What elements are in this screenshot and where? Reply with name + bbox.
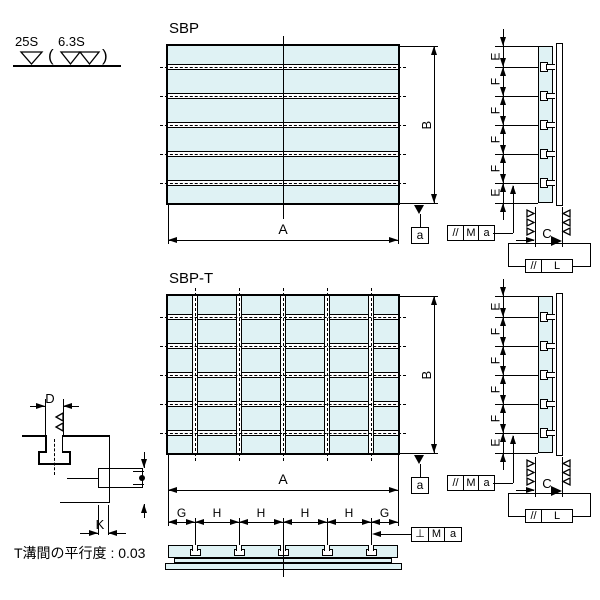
dimension-arrow <box>362 519 371 525</box>
dimension-arrow <box>500 287 506 296</box>
dimension-arrow <box>318 519 327 525</box>
dimension-label: E <box>489 298 502 314</box>
frame-cell: L <box>541 260 572 272</box>
surface-roughness-mark <box>526 477 535 486</box>
line <box>133 471 144 472</box>
line <box>133 484 144 485</box>
surface-roughness-mark <box>526 468 535 477</box>
dimension-label: E <box>489 48 502 64</box>
dimension-arrow <box>372 531 381 537</box>
dimension-arrow <box>283 519 292 525</box>
dimension-label: F <box>489 410 502 426</box>
dimension-arrow <box>431 194 437 203</box>
surface-roughness-mark <box>526 227 535 236</box>
surface-finish-close-paren: ) <box>102 47 108 66</box>
dimension-label: E <box>489 185 502 201</box>
frame-cell: M <box>428 528 444 541</box>
line <box>168 490 398 491</box>
surface-finish-triangle <box>20 51 43 65</box>
t-slot-profile-neck <box>546 430 555 436</box>
dimension-arrow <box>327 519 336 525</box>
frame-cell: // <box>526 510 541 522</box>
frame-cell: // <box>448 226 463 240</box>
dimension-arrow <box>500 453 506 462</box>
datum-triangle <box>414 205 424 214</box>
surface-roughness-mark <box>562 459 571 468</box>
dimension-arrow <box>195 519 204 525</box>
dimension-label: A <box>271 472 295 487</box>
frame-cell: M <box>463 476 478 490</box>
t-slot-profile-neck <box>546 180 555 186</box>
line <box>67 478 98 479</box>
dimension-arrow <box>389 237 398 243</box>
leader-dot <box>139 475 145 481</box>
line <box>398 205 399 244</box>
tolerance-frame: //Ma <box>447 475 495 491</box>
line <box>400 203 438 204</box>
surface-roughness-mark <box>526 209 535 218</box>
surface-roughness-mark <box>526 459 535 468</box>
dimension-label: A <box>271 222 295 237</box>
dimension-arrow <box>63 403 72 409</box>
dimension-label: H <box>251 507 271 520</box>
t-slot-profile-neck <box>546 401 555 407</box>
centerline <box>54 439 55 475</box>
frame-cell: a <box>444 528 461 541</box>
line <box>239 518 240 546</box>
dimension-arrow <box>239 519 248 525</box>
edge-bar <box>556 43 563 206</box>
line <box>168 240 398 241</box>
line <box>13 65 121 67</box>
line <box>22 435 46 437</box>
line <box>377 534 411 535</box>
line <box>45 435 47 452</box>
dimension-arrow <box>500 37 506 46</box>
line <box>327 518 328 546</box>
dimension-arrow <box>510 435 516 444</box>
dimension-label: B <box>420 117 434 133</box>
datum-triangle <box>414 455 424 464</box>
line <box>45 399 46 435</box>
dimension-label: F <box>489 102 502 118</box>
dimension-label: G <box>172 507 192 520</box>
surface-roughness-mark <box>562 218 571 227</box>
dimension-arrow <box>230 519 239 525</box>
section-slot-neck <box>368 545 374 551</box>
t-slot-profile-neck <box>546 64 555 70</box>
dimension-label: H <box>339 507 359 520</box>
parallelism-note: T溝間の平行度 : 0.03 <box>14 546 145 561</box>
surface-roughness-mark <box>55 422 64 432</box>
dimension-arrow <box>108 530 117 536</box>
surface-finish-outer-value: 25S <box>15 35 38 49</box>
tolerance-frame: //L <box>525 509 573 523</box>
datum-label: a <box>412 478 428 493</box>
dimension-label: H <box>207 507 227 520</box>
surface-roughness-mark <box>55 412 64 422</box>
view-title-sbp: SBP <box>169 21 199 38</box>
dimension-arrow <box>141 504 147 513</box>
frame-cell: L <box>541 510 572 522</box>
dimension-label: H <box>295 507 315 520</box>
surface-roughness-mark <box>526 218 535 227</box>
dimension-label: F <box>489 381 502 397</box>
t-slot-profile-neck <box>546 93 555 99</box>
line <box>493 483 513 484</box>
dimension-arrow <box>141 459 147 468</box>
surface-roughness-mark <box>562 468 571 477</box>
line <box>283 528 284 577</box>
dimension-arrow <box>431 46 437 55</box>
dimension-label: F <box>489 73 502 89</box>
line <box>98 505 99 535</box>
line <box>495 296 538 297</box>
surface-roughness-mark <box>562 477 571 486</box>
line <box>283 36 284 219</box>
dimension-arrow <box>431 296 437 305</box>
t-slot-profile-neck <box>546 343 555 349</box>
dimension-arrow <box>168 237 177 243</box>
frame-cell: // <box>526 260 541 272</box>
t-slot-profile-neck <box>546 151 555 157</box>
tolerance-frame: //L <box>525 259 573 273</box>
line <box>493 233 513 234</box>
dimension-label: F <box>489 323 502 339</box>
frame-cell: // <box>448 476 463 490</box>
dimension-label: F <box>489 352 502 368</box>
dimension-label: E <box>489 435 502 451</box>
line <box>195 518 196 546</box>
surface-finish-triangle <box>79 51 100 65</box>
frame-cell: a <box>478 476 494 490</box>
dimension-arrow <box>274 519 283 525</box>
line <box>63 435 110 437</box>
line <box>420 464 421 478</box>
section-slot-neck <box>192 545 198 551</box>
line <box>398 455 399 526</box>
dimension-arrow <box>500 203 506 212</box>
datum-box: a <box>411 227 429 244</box>
line <box>60 502 110 504</box>
t-slot-profile-neck <box>546 122 555 128</box>
surface-roughness-mark <box>562 209 571 218</box>
dimension-arrow <box>510 185 516 194</box>
surface-finish-open-paren: ( <box>48 47 54 66</box>
datum-label: a <box>412 228 428 243</box>
edge-bar <box>556 293 563 456</box>
surface-finish-triangle <box>60 51 81 65</box>
dimension-label: F <box>489 131 502 147</box>
dimension-arrow <box>431 444 437 453</box>
tolerance-frame: //Ma <box>447 225 495 241</box>
line <box>62 435 64 452</box>
line <box>400 453 438 454</box>
tolerance-frame: ⊥Ma <box>411 527 462 542</box>
plate-outline <box>166 294 400 455</box>
dimension-arrow <box>89 530 98 536</box>
dimension-label: C <box>539 227 555 241</box>
t-slot-profile-neck <box>546 372 555 378</box>
dimension-label: G <box>375 507 395 520</box>
frame-cell: M <box>463 226 478 240</box>
line <box>535 207 536 247</box>
dimension-label: C <box>539 477 555 491</box>
frame-cell: ⊥ <box>412 528 428 541</box>
datum-box: a <box>411 477 429 494</box>
section-slot-neck <box>236 545 242 551</box>
dimension-label: F <box>489 160 502 176</box>
dimension-arrow <box>389 487 398 493</box>
dimension-label: B <box>420 367 434 383</box>
frame-cell: a <box>478 226 494 240</box>
view-title-sbp-t: SBP-T <box>169 271 213 288</box>
line <box>420 214 421 228</box>
section-slot-neck <box>324 545 330 551</box>
t-slot-profile-neck <box>546 314 555 320</box>
dimension-arrow <box>36 403 45 409</box>
surface-finish-inner-value: 6.3S <box>58 35 85 49</box>
line <box>535 457 536 497</box>
dimension-arrow <box>168 487 177 493</box>
engineering-drawing: SBP SBP-T 25S 6.3S ( ) D K T溝間の平行度 : 0.0… <box>0 0 600 600</box>
surface-roughness-mark <box>562 227 571 236</box>
line <box>495 46 538 47</box>
